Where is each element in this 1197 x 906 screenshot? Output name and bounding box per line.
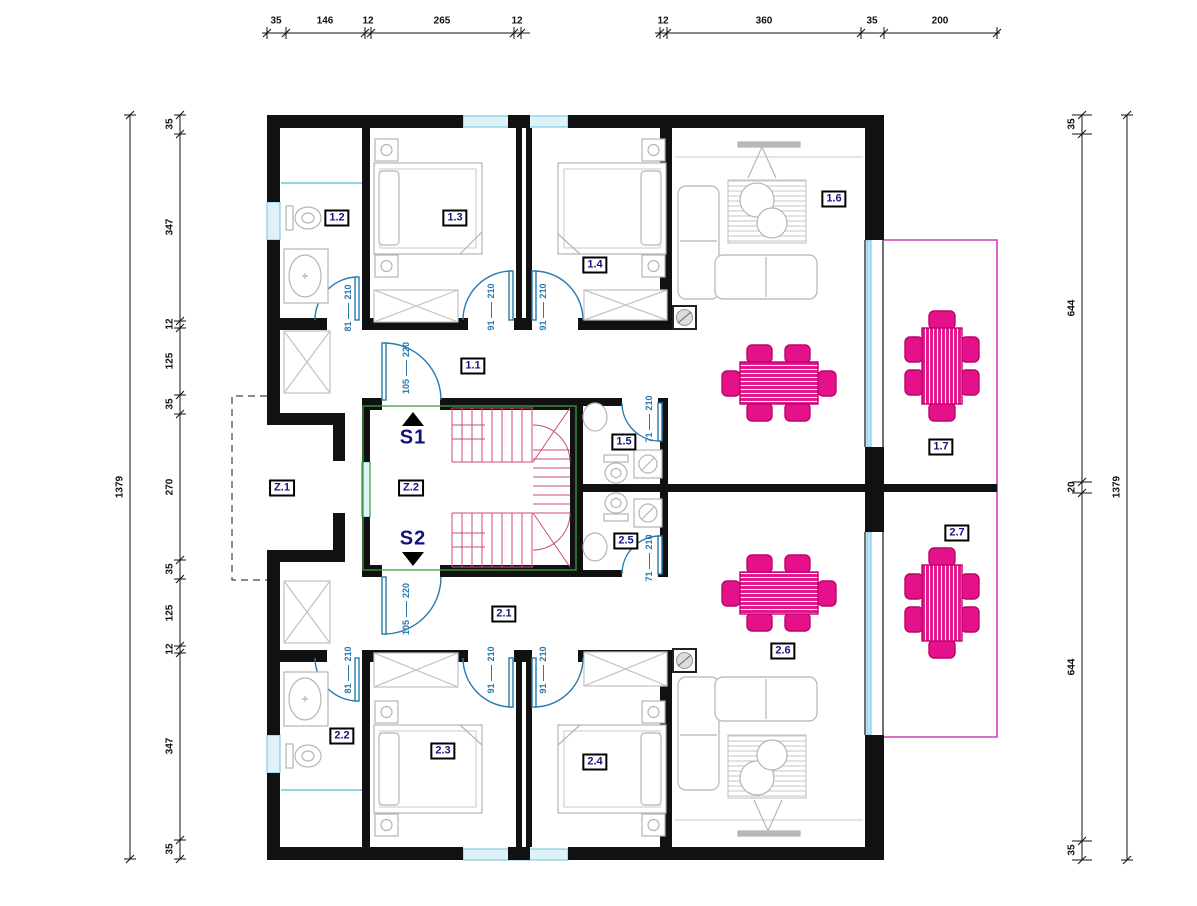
door-size-label: 91210	[485, 283, 497, 331]
dim-label: 12	[165, 318, 176, 329]
dim-label: 347	[165, 738, 176, 755]
room-label-2-7: 2.7	[944, 525, 969, 542]
room-label-z-1: Z.1	[269, 480, 295, 497]
dim-label: 125	[165, 605, 176, 622]
room-label-1-5: 1.5	[611, 434, 636, 451]
door-size-label: 71210	[643, 534, 655, 582]
room-label-1-3: 1.3	[442, 210, 467, 227]
room-label-1-1: 1.1	[460, 358, 485, 375]
dim-label: 35	[1067, 118, 1078, 129]
door-size-label: 91210	[537, 283, 549, 331]
floor-plan-canvas: 35 146 12 265 12 12 360 35 200 35 347 12…	[0, 0, 1197, 906]
dim-label: 12	[657, 16, 668, 27]
room-label-2-6: 2.6	[770, 643, 795, 660]
dim-label: 12	[362, 16, 373, 27]
room-label-1-7: 1.7	[928, 439, 953, 456]
room-label-2-5: 2.5	[613, 533, 638, 550]
room-label-2-4: 2.4	[582, 754, 607, 771]
dim-label: 644	[1067, 300, 1078, 317]
dim-label: 35	[165, 843, 176, 854]
stair-label-s1: S1	[400, 427, 426, 450]
room-label-1-4: 1.4	[582, 257, 607, 274]
door-size-label: 105220	[400, 585, 412, 633]
dim-label: 12	[511, 16, 522, 27]
room-label-1-6: 1.6	[821, 191, 846, 208]
dim-label: 20	[1067, 481, 1078, 492]
dim-label: 200	[932, 16, 949, 27]
dim-label: 35	[165, 563, 176, 574]
dim-label: 360	[756, 16, 773, 27]
room-label-2-1: 2.1	[491, 606, 516, 623]
door-size-label: 81210	[342, 646, 354, 694]
door-size-label: 105220	[400, 344, 412, 392]
dim-label: 125	[165, 353, 176, 370]
room-label-1-2: 1.2	[324, 210, 349, 227]
dim-label: 35	[270, 16, 281, 27]
stair-label-s2: S2	[400, 528, 426, 551]
dim-label: 347	[165, 219, 176, 236]
dim-total-label: 1379	[115, 476, 126, 498]
room-label-2-3: 2.3	[430, 743, 455, 760]
room-label-z-2: Z.2	[398, 480, 424, 497]
door-size-label: 91210	[485, 646, 497, 694]
door-size-label: 71210	[643, 395, 655, 443]
door-size-label: 81210	[342, 284, 354, 332]
dim-label: 265	[434, 16, 451, 27]
dim-label: 35	[866, 16, 877, 27]
door-size-label: 91210	[537, 646, 549, 694]
dim-label: 644	[1067, 659, 1078, 676]
dim-total-label: 1379	[1112, 476, 1123, 498]
dim-label: 146	[317, 16, 334, 27]
dim-label: 12	[165, 643, 176, 654]
room-label-2-2: 2.2	[329, 728, 354, 745]
dim-label: 35	[165, 398, 176, 409]
dim-label: 35	[1067, 844, 1078, 855]
dim-label: 270	[165, 479, 176, 496]
dim-label: 35	[165, 118, 176, 129]
